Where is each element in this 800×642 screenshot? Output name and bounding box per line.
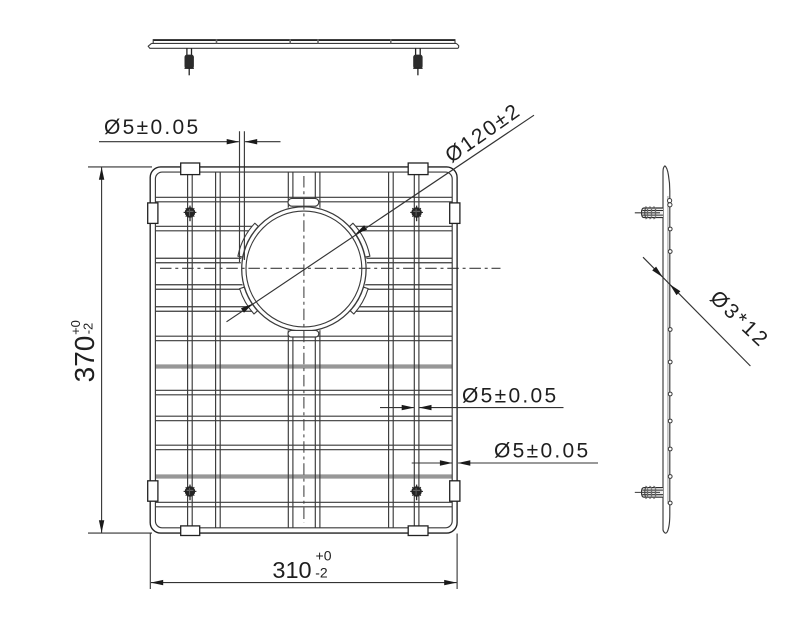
svg-text:Ø5±0.05: Ø5±0.05 bbox=[462, 385, 559, 408]
svg-text:-2: -2 bbox=[81, 323, 96, 335]
svg-text:Ø5±0.05: Ø5±0.05 bbox=[104, 116, 201, 139]
svg-text:310: 310 bbox=[272, 557, 311, 583]
svg-text:-2: -2 bbox=[315, 564, 328, 580]
svg-text:370: 370 bbox=[69, 336, 100, 383]
svg-text:+0: +0 bbox=[316, 547, 332, 563]
svg-text:Ø5±0.05: Ø5±0.05 bbox=[494, 440, 591, 463]
